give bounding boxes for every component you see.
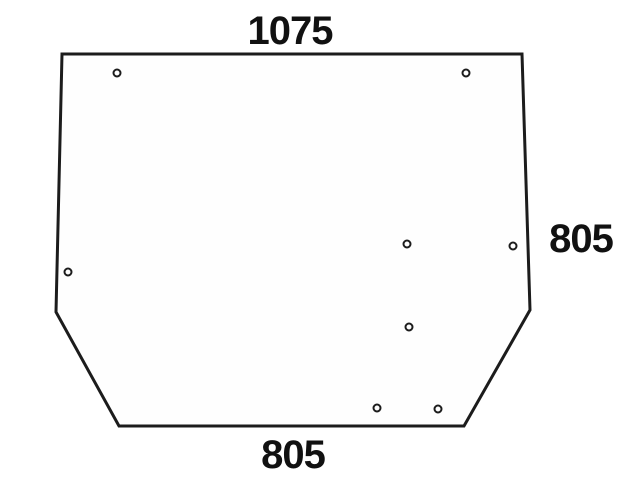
dimension-right-height: 805 [549,217,613,261]
dimension-bottom-width: 805 [261,433,325,477]
dimension-top-width: 1075 [248,9,334,53]
glass-panel-svg: 1075 805 805 [0,0,617,480]
glass-outline [56,54,530,426]
technical-drawing: 1075 805 805 [0,0,617,480]
